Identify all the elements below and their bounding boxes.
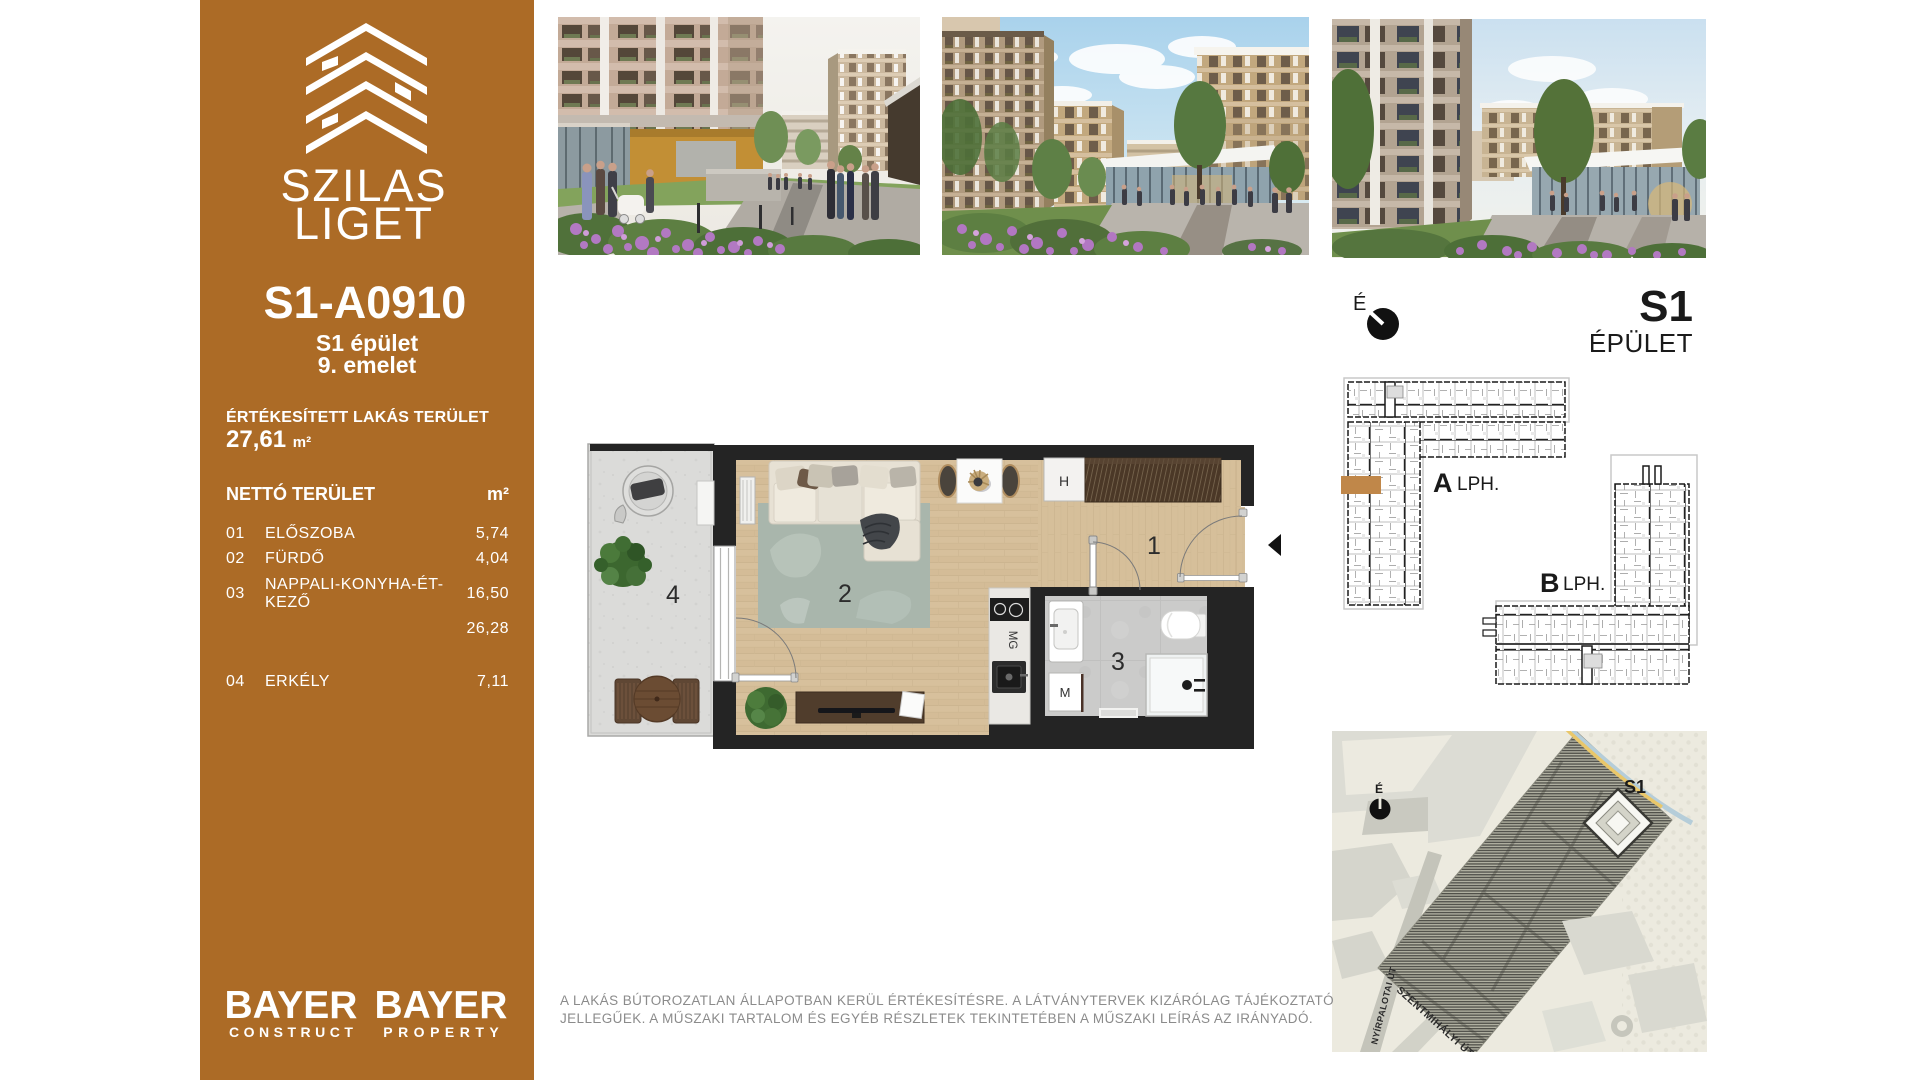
svg-text:4: 4 (666, 581, 680, 609)
svg-text:S1: S1 (1624, 777, 1646, 797)
svg-text:LPH.: LPH. (1563, 574, 1605, 595)
svg-text:LPH.: LPH. (1457, 474, 1499, 495)
svg-text:A: A (1433, 468, 1453, 498)
svg-text:MG: MG (1006, 631, 1018, 650)
svg-text:B: B (1540, 568, 1560, 598)
svg-text:H: H (1059, 473, 1069, 489)
svg-text:É: É (1353, 292, 1366, 315)
svg-text:M: M (1060, 685, 1071, 700)
svg-text:2: 2 (838, 580, 852, 608)
svg-text:É: É (1375, 781, 1383, 796)
svg-text:3: 3 (1111, 648, 1125, 676)
svg-text:1: 1 (1147, 532, 1161, 560)
